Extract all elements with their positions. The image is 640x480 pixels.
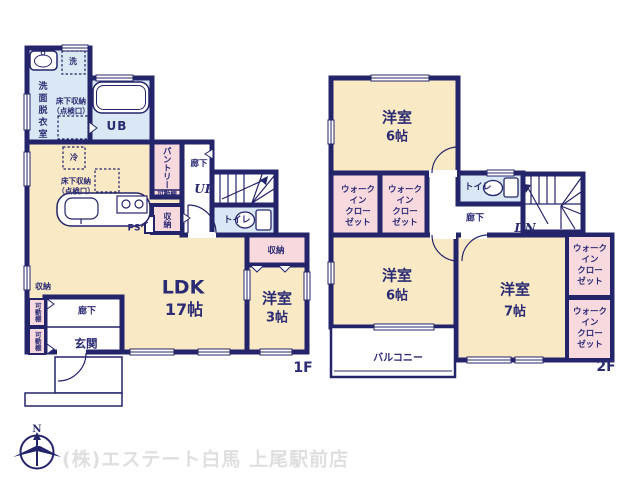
label-up: UP (194, 183, 214, 195)
label-pantry: パントリー (162, 147, 171, 190)
label-underfloor2-line2: （点検口） (57, 187, 95, 195)
label-bed7-size: 7帖 (504, 306, 526, 319)
wic3-line2: イン (573, 255, 607, 266)
label-hall-2f: 廊下 (466, 215, 484, 224)
bed6s-door-opening (430, 232, 456, 239)
wic2-line3: クロー (388, 207, 422, 218)
balcony (331, 327, 455, 377)
wic1-line4: ゼット (341, 218, 375, 229)
wic3-line4: ゼット (573, 277, 607, 288)
wic4-line2: イン (573, 318, 607, 329)
label-genkan: 玄関 (75, 338, 98, 350)
wic4-line3: クロー (573, 329, 607, 340)
label-bed7: 洋室 (500, 283, 530, 298)
floorplan-page: 洗面脱衣室 洗 床下収納 （点検口） UB 冷 床下収納 （点検口） パントリー… (0, 0, 640, 480)
wic3-line1: ウォーク (573, 244, 607, 255)
label-ps: PS (127, 225, 140, 234)
wic4-line1: ウォーク (573, 307, 607, 318)
label-bed3: 洋室 (262, 292, 292, 307)
wic3-line3: クロー (573, 266, 607, 277)
entrance-porch (55, 357, 122, 393)
label-bed3-size: 3帖 (266, 312, 288, 325)
compass-icon (13, 432, 61, 469)
label-dn: DN (514, 222, 535, 234)
label-fridge: 冷 (70, 154, 78, 162)
bathtub-icon (93, 82, 149, 113)
hall-door-opening (188, 232, 216, 238)
wic2-line4: ゼット (388, 218, 422, 229)
label-closet-mid: 収納 (163, 212, 171, 228)
company-name: (株)エステート白馬 上尾駅前店 (62, 445, 349, 472)
wic2-line1: ウォーク (388, 185, 422, 196)
label-toilet-2f: トイレ (464, 184, 491, 193)
label-underfloor1-line1: 床下収納 (56, 97, 86, 105)
label-floor-2f: 2F (596, 360, 615, 374)
bed6n-door-opening (429, 170, 457, 177)
label-washer: 洗 (69, 58, 77, 66)
label-hall-upper: 廊下 (190, 160, 207, 169)
label-hall-genkan: 廊下 (78, 308, 96, 317)
compass-n-label: N (32, 425, 41, 435)
wic2-line2: イン (388, 196, 422, 207)
label-balcony: バルコニー (373, 354, 423, 364)
label-toilet-1f: トイレ (223, 217, 250, 226)
wic4-line4: ゼット (573, 340, 607, 351)
label-underfloor2-line1: 床下収納 (61, 177, 91, 185)
kitchen-counter-icon (57, 193, 150, 226)
label-wic-3: ウォーク イン クロー ゼット (573, 244, 607, 288)
label-wic-4: ウォーク イン クロー ゼット (573, 307, 607, 351)
label-ldk-size: 17帖 (165, 302, 203, 318)
label-bed6n-size: 6帖 (386, 131, 408, 144)
kitchen-sink-icon (65, 198, 98, 219)
label-wic-2: ウォーク イン クロー ゼット (388, 185, 422, 229)
washbasin-icon (30, 51, 57, 70)
label-bed6s-size: 6帖 (386, 290, 408, 303)
label-closet-genkan: 収納 (35, 283, 51, 291)
label-floor-1f: 1F (293, 361, 312, 375)
label-bed6s: 洋室 (382, 269, 412, 284)
label-washroom: 洗面脱衣室 (37, 81, 46, 141)
label-shelf1: 可動棚 (34, 302, 41, 322)
wic1-line3: クロー (341, 207, 375, 218)
label-bed6n: 洋室 (382, 111, 412, 126)
label-shelf2: 可動棚 (34, 331, 41, 351)
room-bed3 (247, 265, 307, 352)
label-unit-bath: UB (107, 120, 128, 132)
entrance-step (25, 393, 122, 406)
label-wic-1: ウォーク イン クロー ゼット (341, 185, 375, 229)
floorplan-svg (0, 0, 640, 480)
wic1-line2: イン (341, 196, 375, 207)
label-shelf: 可動棚 (157, 191, 177, 198)
label-underfloor1-line2: （点検口） (52, 107, 90, 115)
label-closet-west: 収納 (267, 247, 284, 256)
wic1-line1: ウォーク (341, 185, 375, 196)
label-ldk: LDK (162, 279, 205, 298)
